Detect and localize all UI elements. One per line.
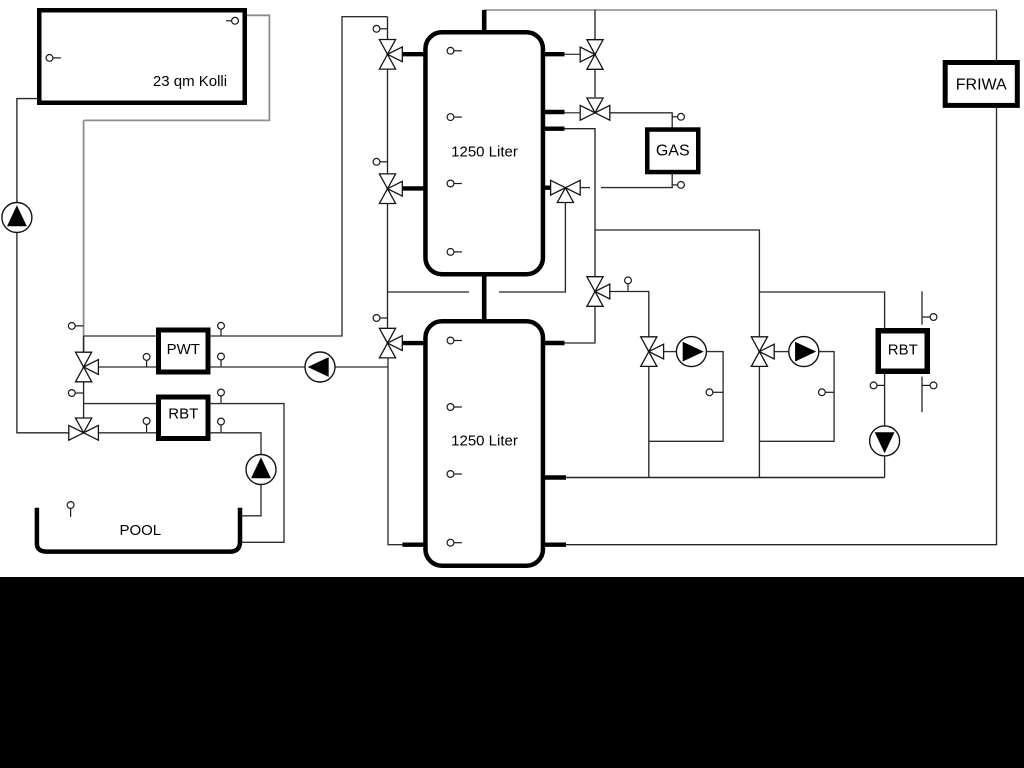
- svg-text:23 qm Kolli: 23 qm Kolli: [153, 73, 227, 90]
- svg-text:FRIWA: FRIWA: [956, 77, 1007, 94]
- svg-text:POOL: POOL: [119, 522, 161, 539]
- svg-text:RBT: RBT: [888, 342, 918, 359]
- svg-text:1250 Liter: 1250 Liter: [451, 144, 518, 161]
- svg-text:1250 Liter: 1250 Liter: [451, 433, 518, 450]
- svg-text:GAS: GAS: [656, 143, 690, 160]
- svg-text:PWT: PWT: [167, 341, 200, 358]
- svg-text:RBT: RBT: [168, 405, 198, 422]
